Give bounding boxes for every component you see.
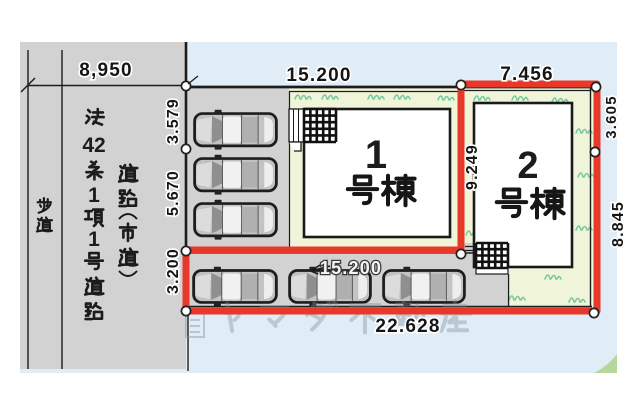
svg-text:7.456: 7.456 (500, 64, 554, 85)
svg-text:22.628: 22.628 (375, 316, 440, 337)
svg-text:15.200: 15.200 (320, 258, 382, 278)
svg-text:3.200: 3.200 (165, 248, 182, 294)
svg-text:8.845: 8.845 (610, 201, 627, 247)
svg-text:1: 1 (88, 228, 100, 251)
svg-text:15.200: 15.200 (286, 65, 351, 86)
svg-text:5.670: 5.670 (165, 170, 182, 216)
svg-text:3.579: 3.579 (165, 98, 182, 144)
svg-text:2: 2 (517, 145, 538, 187)
svg-text:1: 1 (88, 184, 100, 207)
svg-text:42: 42 (82, 134, 105, 157)
svg-text:3.605: 3.605 (603, 95, 620, 139)
svg-text:8,950: 8,950 (79, 60, 133, 81)
svg-text:9.249: 9.249 (464, 144, 481, 190)
svg-text:1: 1 (365, 133, 387, 177)
